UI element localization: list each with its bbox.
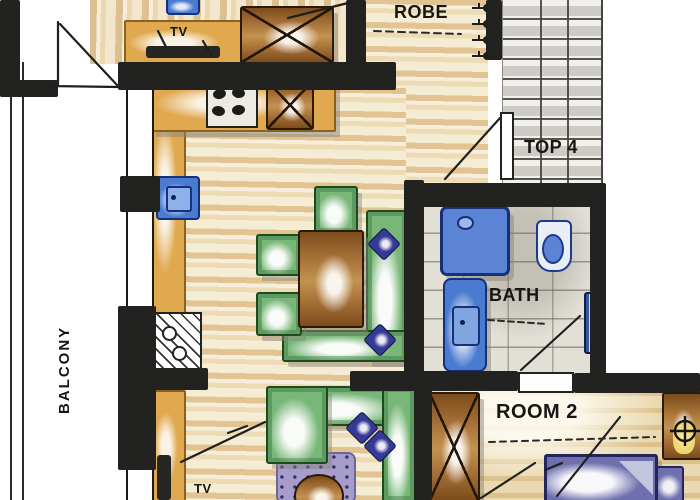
balcony-railing-inner — [22, 62, 24, 500]
living-tv-icon — [157, 455, 171, 500]
floor-plan: ROBE TOP 4 BATH ROOM 2 TV TV BALCONY — [0, 0, 700, 500]
kitchen-sink — [156, 176, 200, 220]
balcony-sliding-door — [118, 306, 156, 470]
sofa-chaise — [266, 386, 328, 464]
dining-chair-top — [314, 186, 358, 234]
room2-bed — [544, 454, 658, 500]
toilet-bowl — [542, 234, 564, 264]
tv-lower-label: TV — [194, 481, 212, 496]
top4-label: TOP 4 — [524, 137, 578, 158]
room1-wardrobe — [240, 6, 334, 64]
hatch-dot — [162, 326, 177, 341]
sink-drain-icon — [171, 195, 176, 200]
lamp-glow — [673, 422, 695, 454]
toilet-icon — [536, 220, 572, 272]
wall-balcony-door-stub — [0, 80, 58, 97]
staircase — [502, 0, 603, 200]
room2-wardrobe — [428, 392, 480, 500]
entry-door-leaf — [500, 112, 514, 180]
bath-vanity — [443, 278, 487, 372]
wall-living-top — [118, 62, 396, 90]
window-mid — [126, 212, 154, 306]
dining-chair-left-1 — [256, 234, 302, 276]
wall-room2-left — [414, 388, 432, 500]
room1-blue-appliance — [166, 0, 200, 15]
window-upper — [126, 90, 154, 176]
shower — [440, 206, 510, 276]
dining-table — [298, 230, 364, 328]
bath-door-opening — [518, 372, 574, 393]
wall-balcony-mid — [120, 176, 160, 212]
bath-label: BATH — [489, 285, 540, 306]
wall-room2-top-right — [574, 373, 700, 393]
wall-bath-right — [590, 205, 606, 391]
wall-hatch-stub — [152, 368, 208, 390]
hatch-dot — [172, 346, 187, 361]
wall-living-right — [404, 180, 424, 376]
shower-drain-icon — [457, 216, 474, 230]
vanity-drain-icon — [460, 320, 465, 325]
hatched-fixture — [152, 312, 202, 372]
window-lower — [126, 470, 154, 500]
vanity-basin — [452, 306, 480, 346]
tv-upper-label: TV — [170, 24, 188, 39]
balcony-label: BALCONY — [56, 326, 73, 414]
dining-chair-left-2 — [256, 292, 302, 336]
room2-label: ROOM 2 — [496, 401, 578, 424]
robe-label: ROBE — [394, 2, 448, 23]
room2-bed-pillow — [656, 466, 684, 500]
wall-room2-top-left — [350, 371, 518, 391]
balcony-railing-outer — [10, 52, 12, 500]
burner-icon — [211, 105, 226, 117]
room1-tv-icon — [146, 46, 220, 58]
burner-icon — [231, 104, 245, 116]
bed-fold — [619, 461, 653, 495]
wall-bath-top — [406, 183, 606, 207]
wall-stair-left — [486, 0, 502, 60]
sink-basin — [166, 186, 192, 212]
wall-room1-robe — [346, 0, 366, 66]
